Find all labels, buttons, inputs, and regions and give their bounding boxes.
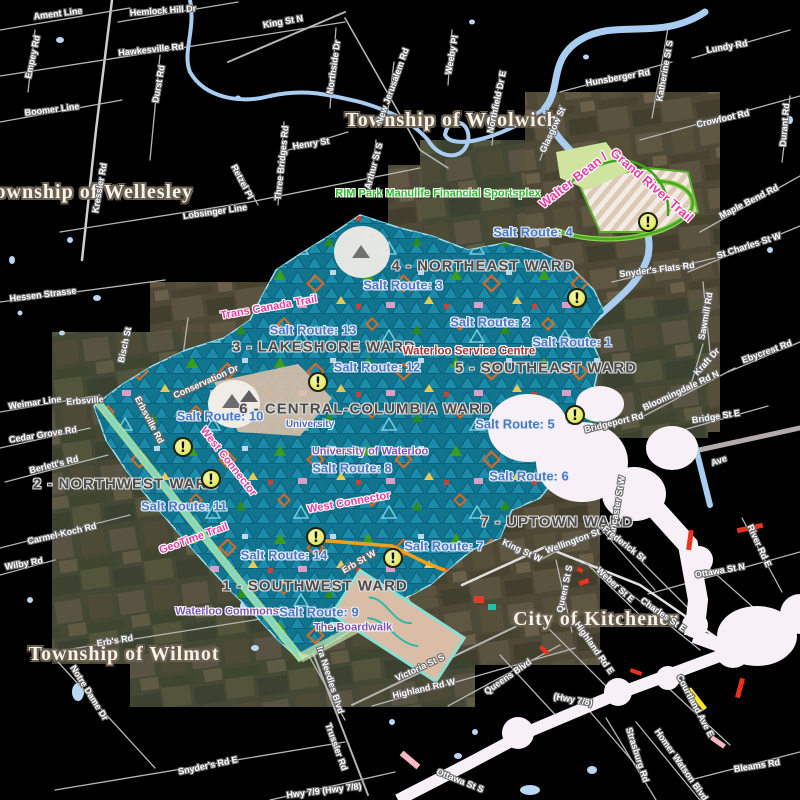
street-label: Cedar Grove Rd (8, 425, 77, 445)
street-label: Maple Bend Rd (718, 183, 780, 221)
street-label: (Hwy 7/8) (553, 692, 593, 708)
poi-label: University (286, 420, 334, 430)
street-label: Victoria St S (394, 653, 446, 683)
street-label: Durst Rd (151, 65, 166, 104)
street-label: Notre Dame Dr (68, 664, 109, 722)
street-label: St Charles St W (716, 231, 783, 260)
salt-route-label: Salt Route: 8 (312, 462, 391, 475)
street-label: Arthur St S (364, 142, 385, 190)
poi-label: Waterloo Commons (175, 607, 279, 618)
ward-label: 1 - SOUTHWEST WARD (222, 579, 408, 594)
street-label: Queens Blvd (483, 658, 533, 697)
poi-label: RIM Park Manulife Financial Sportsplex (335, 189, 540, 200)
street-label: Bisch St (117, 326, 133, 363)
street-label: Weber St E (594, 566, 635, 604)
street-label: King St N (262, 14, 303, 30)
salt-route-label: Salt Route: 2 (450, 316, 529, 329)
street-label: Hemlock Hill Dr (130, 4, 197, 18)
salt-route-label: Salt Route: 12 (334, 361, 421, 374)
street-label: Bloomingdale Rd N (641, 369, 720, 412)
street-label: King St W (501, 538, 543, 564)
label-layer: Township of WoolwichTownship of Wellesle… (0, 0, 800, 800)
warning-icon[interactable]: ! (638, 212, 658, 232)
trail-label: Walter Bean / (537, 150, 610, 211)
ward-label: 2 - NORTHWEST WARD (33, 477, 219, 492)
warning-icon[interactable]: ! (383, 548, 403, 568)
ward-label: 5 - SOUTHEAST WARD (455, 361, 637, 376)
salt-route-label: Salt Route: 14 (241, 549, 328, 562)
street-label: Erbsville Rd (133, 395, 165, 445)
street-label: Hwy 7/9 (Hwy 7/8) (286, 782, 362, 800)
street-label: Crowfoot Rd (696, 109, 751, 130)
warning-icon[interactable]: ! (308, 372, 328, 392)
street-label: Trussler Rd (323, 722, 348, 772)
warning-icon[interactable]: ! (565, 405, 585, 425)
salt-route-label: Salt Route: 3 (363, 279, 442, 292)
salt-route-label: Salt Route: 9 (279, 606, 358, 619)
street-label: Erbsville (66, 395, 104, 407)
poi-label: University of Waterloo (312, 447, 428, 458)
street-label: Ottawa St N (694, 562, 745, 580)
street-label: Ottawa St S (435, 767, 485, 794)
street-label: Ebycrest Rd (741, 339, 793, 365)
map-canvas[interactable]: Township of WoolwichTownship of Wellesle… (0, 0, 800, 800)
street-label: Weeby Pl (444, 35, 460, 76)
street-label: Bridgeport Rd (584, 411, 645, 434)
salt-route-label: Salt Route: 13 (270, 324, 357, 337)
street-label: Ave (710, 454, 728, 468)
ward-label: 6 - CENTRAL-COLUMBIA WARD (239, 402, 493, 417)
street-label: Ament Line (33, 7, 83, 22)
street-label: Sawmill Rd (697, 292, 714, 341)
poi-label: Waterloo Service Centre (403, 346, 536, 358)
street-label: Courtland Ave E (675, 673, 716, 738)
street-label: Bridge St E (691, 409, 740, 425)
street-label: Queen St S (556, 565, 575, 614)
salt-route-label: Salt Route: 1 (532, 336, 611, 349)
street-label: Hessen Strasse (9, 286, 77, 303)
salt-route-label: Salt Route: 7 (404, 540, 483, 553)
street-label: Northside Dr (326, 39, 342, 94)
warning-icon[interactable]: ! (201, 469, 221, 489)
salt-route-label: Salt Route: 10 (177, 410, 264, 423)
street-label: Erb St W (341, 549, 378, 576)
street-label: Lobsinger Line (182, 203, 247, 221)
street-label: Three Bridges Rd (274, 125, 291, 201)
street-label: Hawkesville Rd (118, 42, 184, 58)
trail-label: Trans Canada Trail (220, 294, 318, 322)
trail-label: GeoTime Trail (158, 521, 230, 556)
salt-route-label: Salt Route: 4 (493, 226, 572, 239)
warning-icon[interactable]: ! (306, 527, 326, 547)
street-label: Bleams Rd (733, 758, 780, 774)
salt-route-label: Salt Route: 6 (489, 470, 568, 483)
street-label: Homer Watson Blvd (653, 728, 709, 800)
ward-label: 4 - NORTHEAST WARD (392, 259, 575, 274)
street-label: Weimar Line (8, 395, 62, 411)
street-label: Durant Rd (779, 103, 792, 147)
street-label: Snyder's Rd E (177, 755, 238, 776)
street-label: Empey Rd (24, 35, 42, 80)
poi-label: The Boardwalk (314, 623, 392, 634)
street-label: Lundy Rd (706, 39, 748, 55)
street-label: Katherine St S (655, 40, 675, 102)
street-label: Strasburg Rd (624, 726, 650, 783)
salt-route-label: Salt Route: 11 (141, 500, 227, 513)
trail-label: West Connector (307, 490, 392, 515)
salt-route-label: Salt Route: 5 (475, 418, 554, 431)
street-label: River Rd E (745, 523, 772, 568)
street-label: Boomer Line (24, 102, 80, 118)
ward-label: 3 - LAKESHORE WARD (232, 340, 416, 355)
street-label: Conservation Dr (172, 364, 240, 401)
street-label: Berlett's Rd (29, 455, 80, 476)
warning-icon[interactable]: ! (173, 437, 193, 457)
street-label: Ira Needles Blvd (315, 645, 345, 714)
warning-icon[interactable]: ! (567, 288, 587, 308)
municipality-label: Township of Wilmot (28, 644, 219, 664)
street-label: Hunsberger Rd (585, 68, 651, 88)
street-label: Snyder's Flats Rd (619, 261, 695, 279)
street-label: Wilby Rd (4, 556, 43, 572)
street-label: Retzel Pl (229, 163, 255, 200)
street-label: Henry St (292, 137, 330, 152)
street-label: Carmel-Koch Rd (27, 522, 98, 547)
